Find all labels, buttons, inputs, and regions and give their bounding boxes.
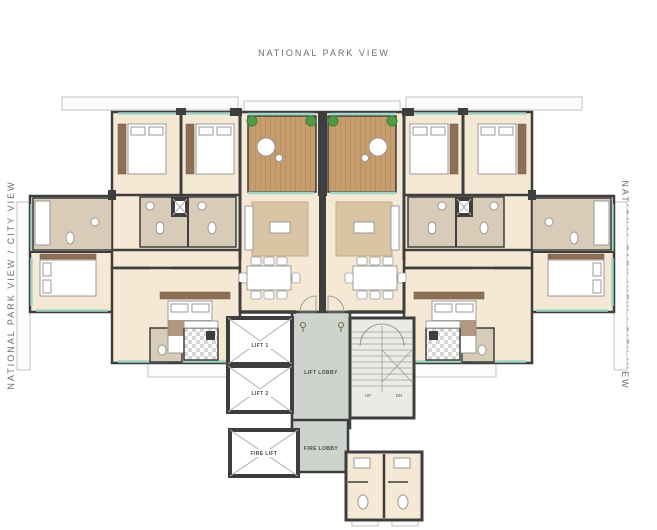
round-chair-icon [257,138,275,156]
stairs-down-label: DN [396,393,403,398]
wc-icon [358,495,368,509]
sink-icon [206,331,215,340]
coffee-table-icon [354,222,374,233]
plant-icon [247,116,257,126]
wardrobe [450,124,458,174]
fire-lobby-label: FIRE LOBBY [304,446,339,452]
wc-icon [156,222,164,234]
floor-plan-page: NATIONAL PARK VIEW NATIONAL PARK VIEW / … [0,0,657,530]
kitchen-counter [426,321,460,328]
sink-icon [429,331,438,340]
plant-icon [306,116,316,126]
wardrobe [118,124,126,174]
wc-icon [66,232,74,244]
wc-icon [208,222,216,234]
wc-icon [428,222,436,234]
wardrobe [518,124,526,174]
basin-icon [394,458,410,468]
deck-left [248,116,316,192]
sofa-icon [245,206,253,250]
deck-right [328,116,396,192]
basin-icon [354,458,370,468]
wardrobe [548,254,604,259]
basin-icon [545,218,553,226]
staircase: UP DN [350,318,414,418]
wc-icon [478,345,486,355]
wardrobe [414,292,484,299]
fire-lift-label: FIRE LIFT [251,451,278,457]
side-table-icon [362,155,369,162]
stairs-up-label: UP [365,393,371,398]
side-table-icon [276,155,283,162]
wc-icon [570,232,578,244]
basin-icon [198,202,206,210]
top-view-label: NATIONAL PARK VIEW [258,48,390,58]
kitchen-counter [184,321,218,328]
plant-icon [387,116,397,126]
central-core: LIFT 1 LIFT 2 LIFT LOBBY FIRE LIFT FIRE … [228,296,422,520]
basin-icon [146,202,154,210]
wc-icon [158,345,166,355]
deck-terraces [247,112,397,196]
basin-icon [438,202,446,210]
dining-table [353,266,397,290]
toilet-block [346,452,422,520]
sofa-icon [391,206,399,250]
plant-icon [328,116,338,126]
lift-lobby-label: LIFT LOBBY [304,370,338,376]
wardrobe [186,124,194,174]
dining-table [247,266,291,290]
bathtub-icon [35,201,50,245]
round-chair-icon [369,138,387,156]
deck-center-pillar [318,112,327,196]
coffee-table-icon [270,222,290,233]
left-view-label: NATIONAL PARK VIEW / CITY VIEW [6,180,16,389]
wardrobe [160,292,230,299]
lift-1-label: LIFT 1 [251,343,268,349]
basin-icon [490,202,498,210]
basin-icon [91,218,99,226]
wardrobe [40,254,96,259]
wc-icon [480,222,488,234]
floor-plan-image: NATIONAL PARK VIEW NATIONAL PARK VIEW / … [0,0,657,530]
wc-icon [398,495,408,509]
lift-2-label: LIFT 2 [251,391,268,397]
bathtub-icon [594,201,609,245]
